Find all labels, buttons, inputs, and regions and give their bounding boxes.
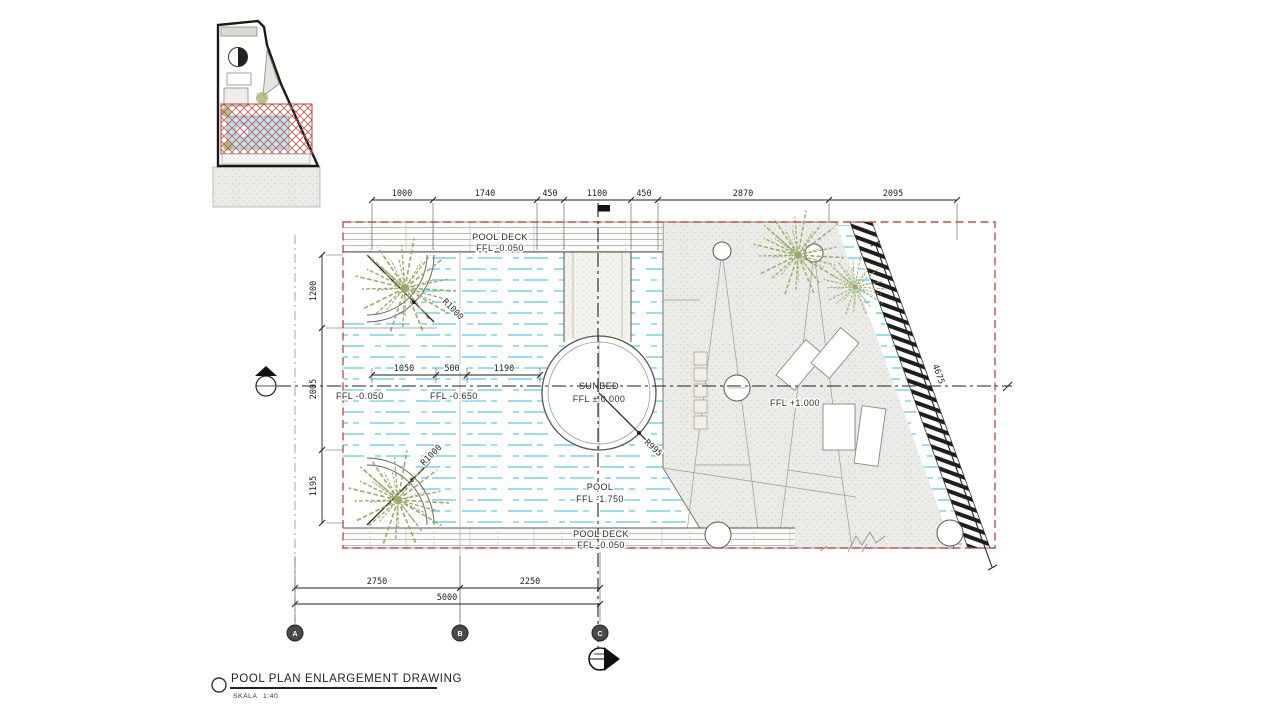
dim-bottom-1: 2750 [367, 577, 387, 587]
dim-left-1: 1200 [309, 281, 319, 301]
dim-diagonal-label: 4675 [930, 363, 946, 386]
pool-deck-bottom-label: POOL DECK [573, 529, 629, 539]
grid-bubble-c: C [597, 631, 602, 638]
dim-top-3: 450 [542, 189, 557, 199]
site-lower-deck [222, 154, 310, 164]
pool-mid-level: FFL -0.650 [430, 391, 478, 401]
terrace-level: FFL +1.000 [770, 398, 820, 408]
pool-label: POOL [587, 482, 614, 492]
dim-inner-3: 1190 [494, 364, 514, 374]
pool-deck-top-label: POOL DECK [472, 232, 528, 242]
deck-left-level: FFL -0.050 [336, 391, 384, 401]
pool-level: FFL -1.750 [576, 494, 624, 504]
dim-inner-1: 1050 [394, 364, 414, 374]
datum-flag-icon [598, 205, 610, 212]
grid-bubble-b: B [457, 631, 462, 638]
dim-left-3: 1195 [309, 476, 319, 496]
dim-top-5: 450 [636, 189, 651, 199]
scale-value: 1:40 [263, 693, 278, 700]
dimension-chain-bottom: 2750 2250 5000 [292, 552, 603, 622]
section-marker-bottom-icon [589, 647, 620, 671]
drawing-sheet: 1000 1740 450 1100 450 2870 2095 1200 20… [0, 0, 1280, 720]
dim-top-4: 1100 [587, 189, 607, 199]
site-enlargement-zone-hatch [221, 104, 312, 154]
dim-inner-2: 500 [444, 364, 459, 374]
pool-plan-canvas: 1000 1740 450 1100 450 2870 2095 1200 20… [0, 0, 1280, 720]
pool-deck-top-level: FFL -0.050 [476, 243, 524, 253]
drawing-title: POOL PLAN ENLARGEMENT DRAWING [231, 673, 462, 685]
main-plan: 1000 1740 450 1100 450 2870 2095 1200 20… [255, 189, 1012, 671]
dim-overall: 5000 [437, 593, 457, 603]
title-block: POOL PLAN ENLARGEMENT DRAWING SKALA 1:40 [212, 673, 462, 700]
grid-bubbles: A B C [287, 625, 608, 641]
scale-label: SKALA [233, 693, 257, 700]
title-bullet-icon [212, 678, 226, 692]
sunbed-level: FFL ± 0.000 [573, 394, 626, 404]
dim-top-1: 1000 [392, 189, 412, 199]
dim-left-2: 2005 [309, 379, 319, 399]
dim-top-2: 1740 [475, 189, 495, 199]
dim-top-7: 2095 [883, 189, 903, 199]
dim-top-6: 2870 [733, 189, 753, 199]
terrace-edge-steps [694, 352, 707, 429]
pool-deck-bottom-level: FFL -0.050 [577, 540, 625, 550]
site-key-plan [213, 21, 320, 207]
site-road-strip [213, 167, 320, 207]
section-marker-left-icon [255, 366, 277, 396]
sunbed-label: SUNBED [579, 381, 619, 391]
dim-bottom-2: 2250 [520, 577, 540, 587]
grid-bubble-a: A [292, 631, 297, 638]
